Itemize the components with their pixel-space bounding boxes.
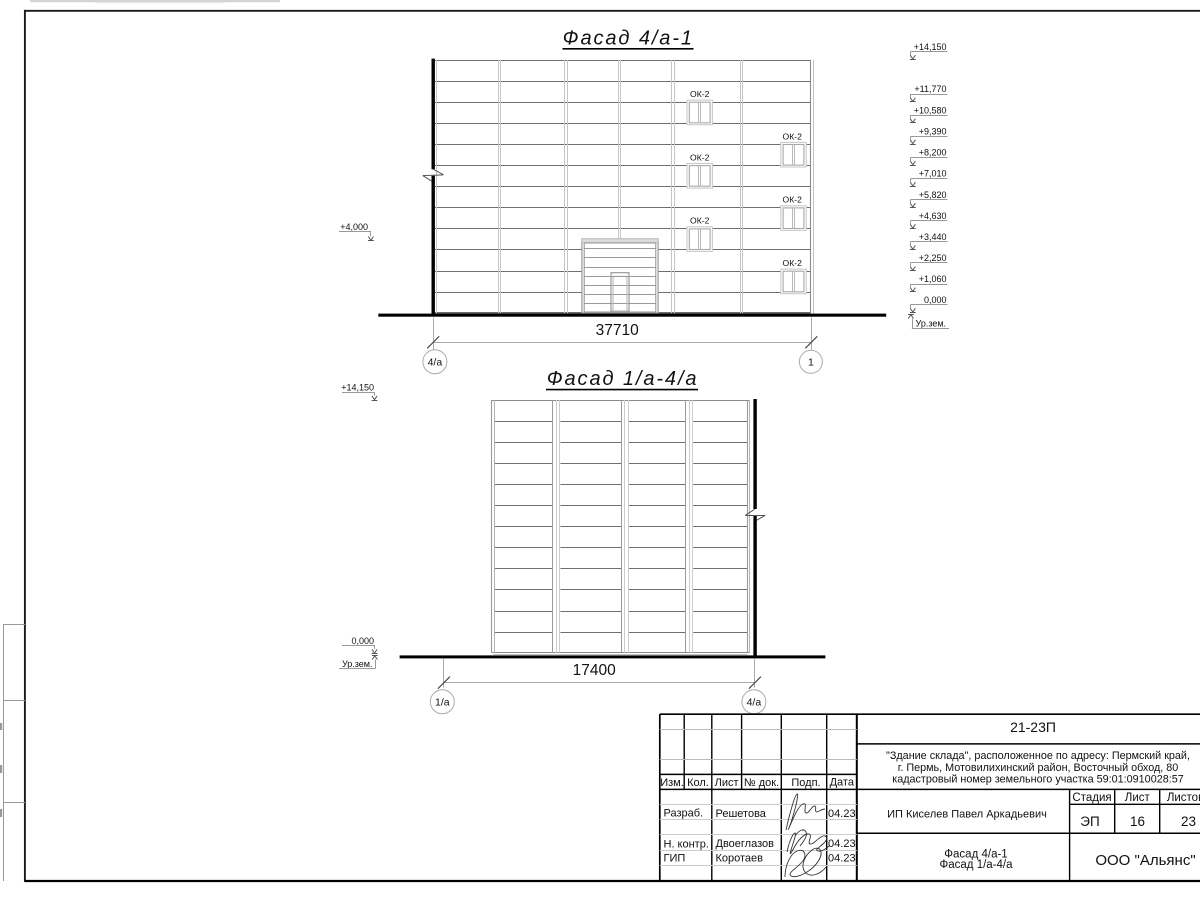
svg-text:17400: 17400 (573, 662, 616, 679)
svg-text:ГИП: ГИП (664, 853, 686, 865)
svg-text:4/а: 4/а (747, 697, 762, 709)
svg-text:23: 23 (1181, 814, 1196, 829)
svg-text:+1,060: +1,060 (919, 274, 947, 284)
svg-text:ОК-2: ОК-2 (690, 89, 710, 99)
svg-text:+8,200: +8,200 (919, 148, 947, 158)
svg-text:Листов: Листов (1167, 792, 1200, 804)
svg-text:+2,250: +2,250 (919, 253, 947, 263)
svg-text:Фасад 4/а-1: Фасад 4/а-1 (563, 28, 694, 50)
svg-text:"Здание склада", расположенное: "Здание склада", расположенное по адресу… (886, 750, 1190, 762)
svg-text:16: 16 (1130, 814, 1145, 829)
svg-text:Кол.: Кол. (687, 777, 709, 789)
svg-text:+5,820: +5,820 (919, 190, 947, 200)
svg-text:Разраб.: Разраб. (664, 807, 704, 819)
svg-text:+11,770: +11,770 (914, 84, 946, 94)
svg-text:+4,000: +4,000 (340, 222, 368, 232)
svg-text:4/а: 4/а (428, 357, 443, 369)
svg-text:04.23: 04.23 (828, 838, 856, 850)
svg-text:ОК-2: ОК-2 (783, 258, 803, 268)
svg-text:Решетова: Решетова (716, 808, 767, 820)
svg-text:ИП Киселев Павел Аркадьевич: ИП Киселев Павел Аркадьевич (887, 808, 1047, 820)
svg-text:0,000: 0,000 (351, 636, 374, 646)
svg-text:г. Пермь, Мотовилихинский райо: г. Пермь, Мотовилихинский район, Восточн… (898, 762, 1179, 774)
svg-text:+4,630: +4,630 (919, 211, 947, 221)
svg-text:+14,150: +14,150 (914, 42, 947, 52)
svg-text:ОК-2: ОК-2 (783, 195, 803, 205)
svg-text:Ур.зем.: Ур.зем. (342, 659, 373, 669)
svg-text:0,000: 0,000 (924, 295, 947, 305)
svg-text:37710: 37710 (596, 322, 639, 339)
svg-text:+9,390: +9,390 (919, 126, 947, 136)
svg-text:Лист: Лист (715, 777, 739, 789)
svg-text:+3,440: +3,440 (919, 232, 947, 242)
svg-text:1/а: 1/а (435, 697, 450, 709)
svg-text:Лист: Лист (1125, 792, 1151, 804)
svg-text:+10,580: +10,580 (914, 105, 947, 115)
svg-text:04.23: 04.23 (828, 808, 856, 820)
svg-text:Ур.зем.: Ур.зем. (916, 318, 947, 328)
svg-text:ОК-2: ОК-2 (783, 131, 803, 141)
svg-text:Фасад 1/а-4/а: Фасад 1/а-4/а (940, 859, 1014, 871)
svg-text:ОК-2: ОК-2 (690, 216, 710, 226)
svg-text:+7,010: +7,010 (919, 169, 947, 179)
svg-text:кадастровый номер земельного у: кадастровый номер земельного участка 59:… (892, 774, 1183, 786)
svg-text:Двоеглазов: Двоеглазов (716, 838, 775, 850)
svg-text:04.23: 04.23 (828, 853, 856, 865)
svg-text:Н. контр.: Н. контр. (664, 839, 709, 851)
svg-text:Подп.: Подп. (791, 777, 820, 789)
svg-text:Коротаев: Коротаев (716, 853, 764, 865)
svg-text:№ док.: № док. (744, 777, 779, 789)
svg-text:Дата: Дата (830, 777, 855, 789)
svg-text:21-23П: 21-23П (1010, 719, 1056, 735)
svg-text:ООО "Альянс": ООО "Альянс" (1095, 852, 1195, 869)
svg-text:Стадия: Стадия (1072, 792, 1111, 804)
svg-text:+14,150: +14,150 (341, 383, 374, 393)
svg-text:ОК-2: ОК-2 (690, 152, 710, 162)
svg-text:Фасад 1/а-4/а: Фасад 1/а-4/а (547, 368, 699, 390)
svg-text:ЭП: ЭП (1080, 814, 1099, 829)
svg-text:1: 1 (808, 357, 814, 369)
svg-text:Изм.: Изм. (660, 777, 684, 789)
